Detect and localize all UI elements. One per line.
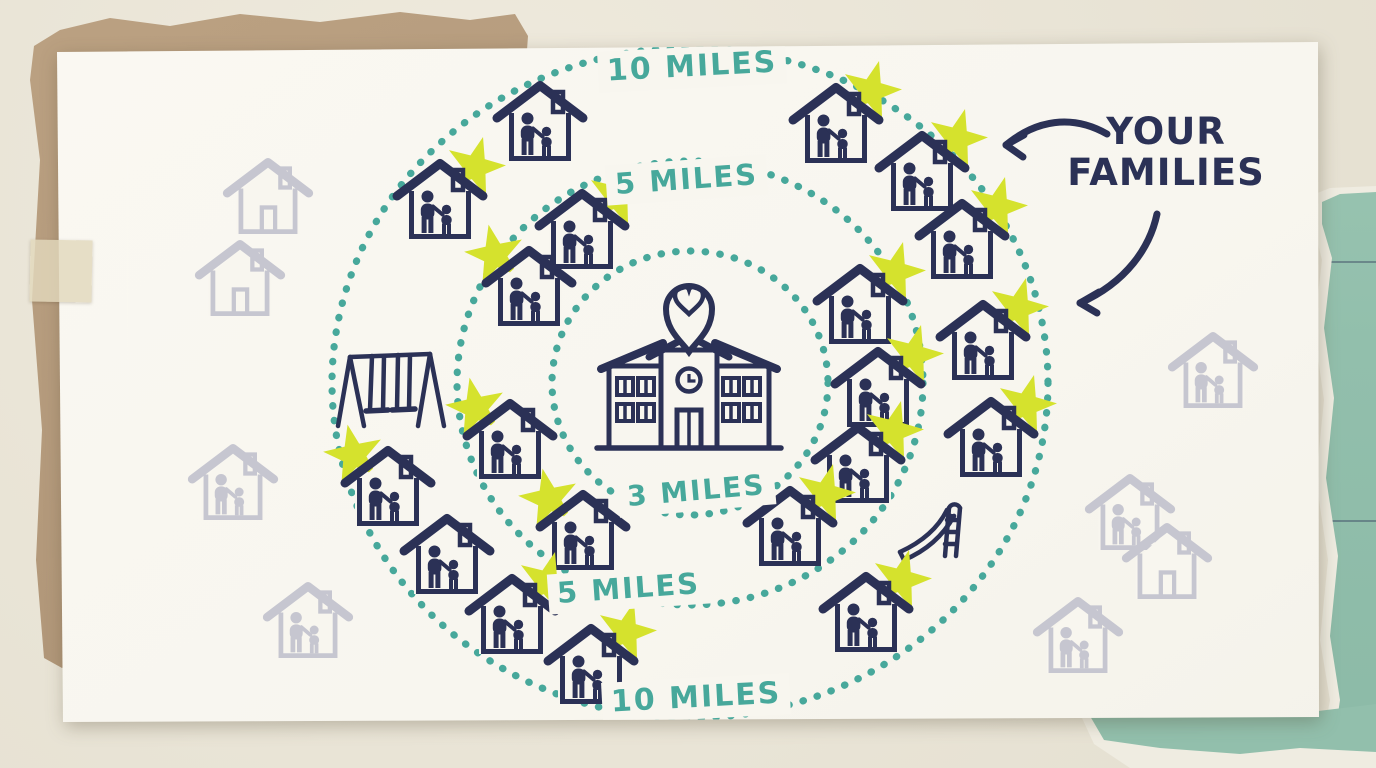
family-house-icon: [404, 519, 490, 595]
white-paper-shadow: 10 MILES 5 MILES 3 MILES 5 MILES 10 MILE…: [0, 0, 1376, 768]
tape-strip: [29, 239, 92, 302]
scene: 10 MILES 5 MILES 3 MILES 5 MILES 10 MILE…: [0, 0, 1376, 768]
family-house-icon: [267, 586, 349, 658]
family-house-icon: [497, 86, 583, 162]
school-icon: [597, 286, 781, 448]
arrow-to-lower-house: [1080, 214, 1157, 303]
your-families-line2: FAMILIES: [1060, 153, 1272, 194]
family-house-icon: [1037, 601, 1119, 673]
family-house-icon: [192, 448, 274, 520]
white-paper-canvas: 10 MILES 5 MILES 3 MILES 5 MILES 10 MILE…: [0, 0, 1376, 768]
your-families-line1: YOUR: [1060, 112, 1272, 153]
your-families-label: YOUR FAMILIES: [1060, 112, 1272, 193]
house-icon: [227, 162, 309, 234]
swing-set-icon: [338, 354, 444, 426]
house-icon: [199, 244, 281, 316]
family-house-icon: [1172, 336, 1254, 408]
